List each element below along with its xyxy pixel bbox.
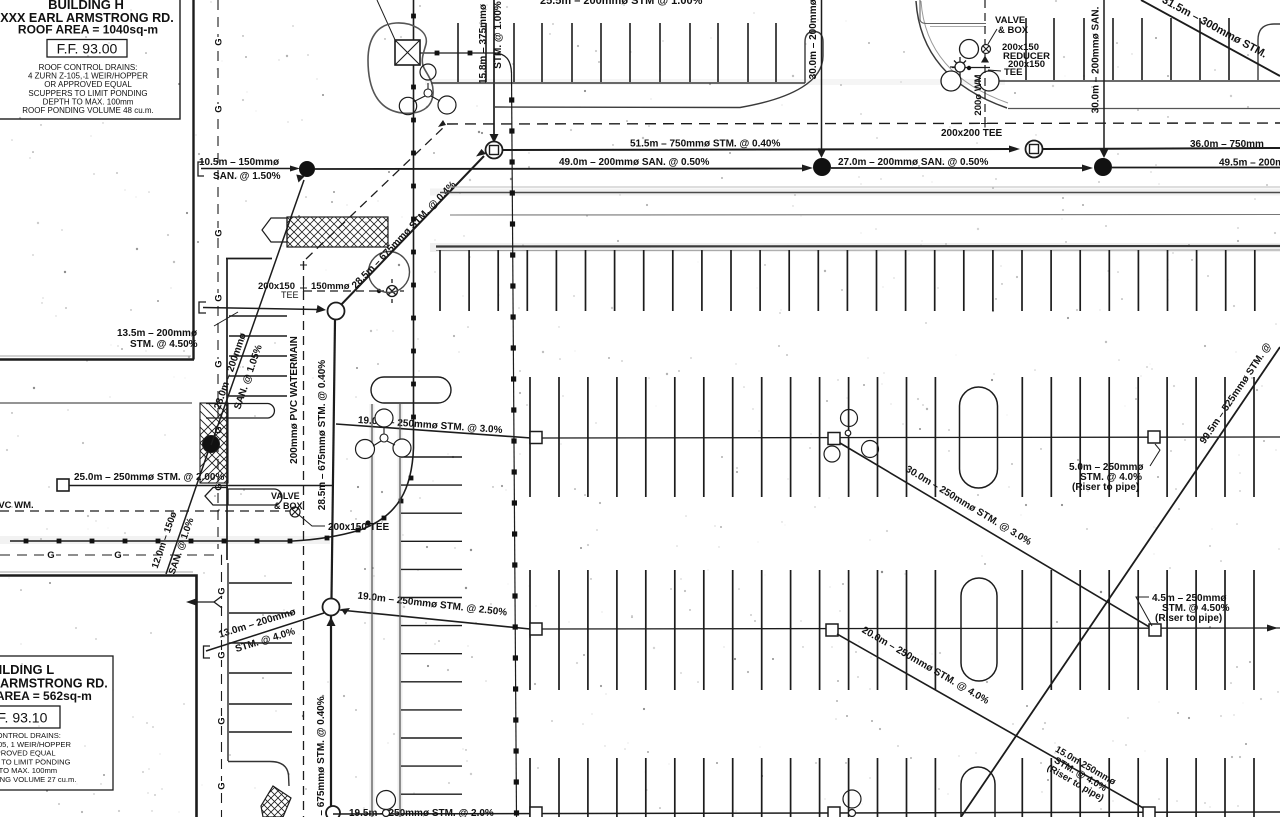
svg-text:150mmø: 150mmø xyxy=(311,281,350,292)
svg-text:G: G xyxy=(217,651,228,658)
svg-text:TEE: TEE xyxy=(281,290,299,300)
svg-text:G: G xyxy=(214,105,225,112)
svg-text:STM. @ 4.50%: STM. @ 4.50% xyxy=(130,339,198,350)
svg-text:10.5m – 150mmø: 10.5m – 150mmø xyxy=(199,157,280,168)
svg-text:G: G xyxy=(114,550,121,561)
svg-text:ROOF AREA = 562sq-m: ROOF AREA = 562sq-m xyxy=(0,689,92,703)
svg-text:25.5m – 200mmø STM @ 1.00%: 25.5m – 200mmø STM @ 1.00% xyxy=(540,0,703,7)
svg-text:200mmø PVC WATERMAIN: 200mmø PVC WATERMAIN xyxy=(289,336,300,464)
svg-text:OR APPROVED EQUAL: OR APPROVED EQUAL xyxy=(0,749,56,758)
svg-text:19.5m – 250mmø STM. @ 2.0%: 19.5m – 250mmø STM. @ 2.0% xyxy=(349,808,494,817)
svg-text:DEPTH TO MAX. 100mm: DEPTH TO MAX. 100mm xyxy=(0,766,57,775)
svg-text:ROOF AREA = 1040sq-m: ROOF AREA = 1040sq-m xyxy=(18,23,158,37)
svg-text:49.5m – 200m: 49.5m – 200m xyxy=(1219,158,1280,169)
svg-text:200x150 TEE: 200x150 TEE xyxy=(328,522,389,533)
svg-text:F.F. 93.00: F.F. 93.00 xyxy=(57,41,118,57)
svg-text:4 ZURN Z-105, 1 WEIR/HOPPER: 4 ZURN Z-105, 1 WEIR/HOPPER xyxy=(0,740,71,749)
svg-text:G: G xyxy=(217,587,228,594)
svg-text:G: G xyxy=(217,782,228,789)
svg-text:G: G xyxy=(214,38,225,45)
svg-text:(Riser to pipe): (Riser to pipe) xyxy=(1072,482,1139,493)
svg-text:30.0m – 200mmø SAN.: 30.0m – 200mmø SAN. xyxy=(808,0,819,79)
svg-text:VALVE: VALVE xyxy=(271,491,300,501)
svg-text:– 675mmø STM. @ 0.40%: – 675mmø STM. @ 0.40% xyxy=(316,696,327,815)
svg-text:28.5m – 675mmø STM. @ 0.40%: 28.5m – 675mmø STM. @ 0.40% xyxy=(317,360,328,510)
svg-text:51.5m – 750mmø STM. @ 0.40%: 51.5m – 750mmø STM. @ 0.40% xyxy=(630,139,780,150)
svg-text:49.0m – 200mmø SAN. @ 0.50%: 49.0m – 200mmø SAN. @ 0.50% xyxy=(559,157,709,168)
svg-text:30.0m – 200mmø SAN.: 30.0m – 200mmø SAN. xyxy=(1091,6,1102,113)
svg-text:F.F. 93.10: F.F. 93.10 xyxy=(0,710,48,726)
svg-text:TEE: TEE xyxy=(1004,67,1022,78)
svg-text:27.0m – 200mmø SAN. @ 0.50%: 27.0m – 200mmø SAN. @ 0.50% xyxy=(838,157,988,168)
svg-text:200x200 TEE: 200x200 TEE xyxy=(941,128,1002,139)
svg-text:G: G xyxy=(214,229,225,236)
svg-text:ROOF CONTROL DRAINS:: ROOF CONTROL DRAINS: xyxy=(0,731,61,740)
svg-text:25.0m – 250mmø STM. @ 2.00%: 25.0m – 250mmø STM. @ 2.00% xyxy=(74,472,224,483)
svg-text:G: G xyxy=(214,294,225,301)
svg-text:13.5m – 200mmø: 13.5m – 200mmø xyxy=(117,328,198,339)
svg-text:ROOF PONDING VOLUME 48 cu.m.: ROOF PONDING VOLUME 48 cu.m. xyxy=(22,106,154,115)
svg-text:PVC WM.: PVC WM. xyxy=(0,500,34,511)
svg-text:SAN. @ 1.50%: SAN. @ 1.50% xyxy=(213,171,281,182)
svg-text:& BOX: & BOX xyxy=(274,501,303,511)
svg-text:200ø WM: 200ø WM xyxy=(973,74,984,115)
svg-text:(Riser to pipe): (Riser to pipe) xyxy=(1155,613,1222,624)
svg-text:BUILDING L: BUILDING L xyxy=(0,662,54,677)
svg-text:& BOX: & BOX xyxy=(998,25,1029,36)
svg-text:G: G xyxy=(214,360,225,367)
svg-text:STM. @ 1.00%: STM. @ 1.00% xyxy=(493,1,504,69)
svg-text:G: G xyxy=(217,717,228,724)
svg-text:SCUPPERS TO LIMIT PONDING: SCUPPERS TO LIMIT PONDING xyxy=(0,757,71,766)
svg-text:36.0m – 750mm: 36.0m – 750mm xyxy=(1190,139,1264,150)
svg-text:15.8m – 375mmø: 15.8m – 375mmø xyxy=(478,3,489,84)
svg-text:G: G xyxy=(47,550,54,561)
svg-text:ROOF PONDING VOLUME 27 cu.m.: ROOF PONDING VOLUME 27 cu.m. xyxy=(0,775,76,784)
